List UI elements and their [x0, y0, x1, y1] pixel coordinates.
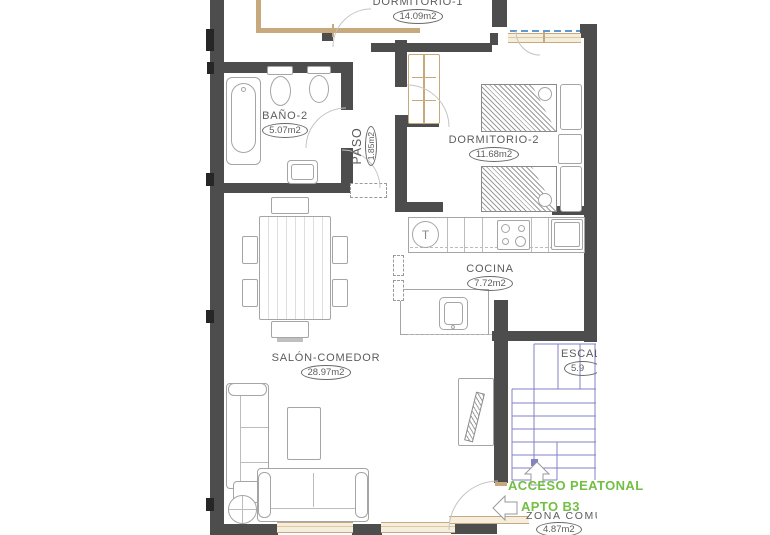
apto-b3-label: APTO B3 — [521, 499, 580, 514]
room-name: PASO — [350, 128, 364, 165]
room-label-bano-2: BAÑO-2 5.07m2 — [230, 110, 340, 138]
floor-plan: T — [0, 0, 770, 535]
room-area: 1.85m2 — [366, 132, 376, 160]
room-name: COCINA — [466, 263, 514, 275]
room-area: 4.87m2 — [543, 524, 575, 535]
room-area-badge: 5.07m2 — [262, 123, 308, 138]
room-label-paso: PASO 1.85m2 — [350, 114, 384, 178]
room-label-cocina: COCINA 7.72m2 — [453, 263, 527, 291]
room-label-escalera: ESCAL 5.9 — [561, 348, 597, 376]
room-area-badge: 1.85m2 — [365, 126, 377, 166]
room-area-badge: 14.09m2 — [393, 9, 444, 24]
room-name: BAÑO-2 — [262, 110, 308, 122]
room-name: DORMITORIO-1 — [373, 0, 464, 8]
acceso-peatonal-label: ACCESO PEATONAL — [508, 478, 644, 493]
room-label-salon-comedor: SALÓN-COMEDOR 28.97m2 — [266, 352, 386, 380]
cad-drawing-area: T — [0, 0, 597, 535]
room-area-badge: 5.9 — [564, 361, 597, 376]
stair-treads — [512, 389, 596, 480]
room-area-badge: 7.72m2 — [467, 276, 513, 291]
zona-comun-area-badge: 4.87m2 — [536, 522, 582, 535]
room-area: 5.07m2 — [269, 125, 301, 136]
room-name: SALÓN-COMEDOR — [272, 352, 381, 364]
room-area-badge: 28.97m2 — [301, 365, 352, 380]
stair-start-dot — [531, 459, 538, 466]
room-area: 28.97m2 — [308, 367, 345, 378]
room-area: 11.68m2 — [476, 149, 512, 160]
room-name: ESCAL — [561, 348, 597, 360]
room-name: DORMITORIO-2 — [449, 134, 540, 146]
room-area-badge: 11.68m2 — [469, 147, 519, 162]
room-label-dormitorio-1: DORMITORIO-1 14.09m2 — [348, 0, 488, 24]
room-label-dormitorio-2: DORMITORIO-2 11.68m2 — [438, 134, 550, 162]
door-arc — [516, 31, 540, 55]
room-area: 14.09m2 — [400, 11, 437, 22]
room-area: 5.9 — [571, 363, 584, 374]
room-area: 7.72m2 — [474, 278, 506, 289]
entry-door-arc — [449, 481, 498, 530]
door-arc — [407, 85, 449, 127]
